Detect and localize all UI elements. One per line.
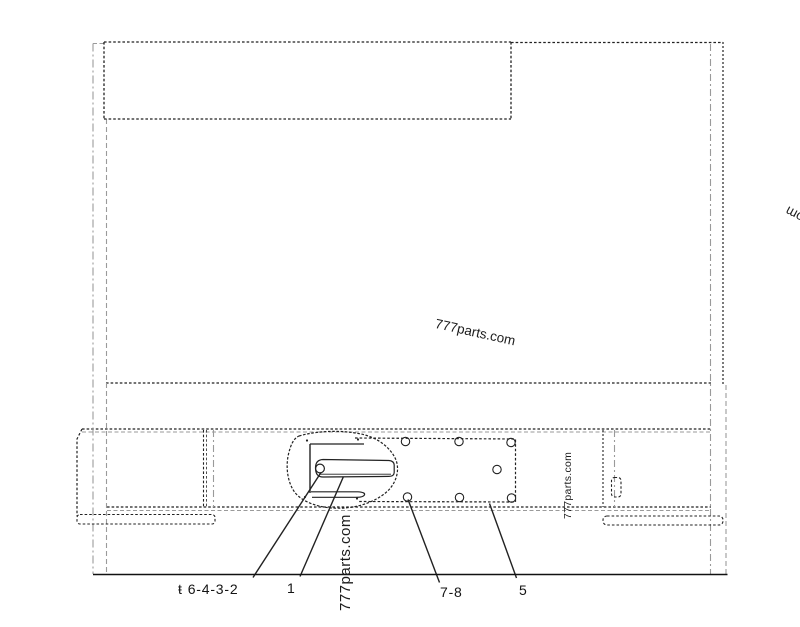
leader-5 bbox=[490, 504, 517, 579]
machine-body-outline bbox=[77, 42, 723, 516]
access-panel-part-5 bbox=[304, 437, 516, 502]
leader-7-8 bbox=[408, 500, 440, 583]
rivet-dot bbox=[357, 438, 359, 440]
parts-diagram-canvas: ŧ6-4-3-2 1 7-8 5 777parts.com 777parts.c… bbox=[0, 0, 800, 627]
panel-screw bbox=[455, 493, 463, 501]
latch-lower-bar bbox=[311, 492, 365, 498]
callout-label-6-4-3-2: ŧ6-4-3-2 bbox=[178, 581, 238, 597]
left-chamfer-edge bbox=[77, 429, 82, 516]
callout-text: 7-8 bbox=[440, 584, 463, 600]
top-hood-panel-outline bbox=[104, 42, 511, 119]
left-sill-bar bbox=[77, 515, 215, 525]
panel-screw bbox=[507, 438, 515, 446]
diagram-line-art bbox=[0, 0, 800, 627]
rivet-dot bbox=[306, 439, 308, 441]
watermark-right-vertical: 777parts.com bbox=[562, 452, 574, 519]
right-sill-bar bbox=[603, 516, 723, 525]
compartment-clip bbox=[612, 478, 622, 498]
watermark-bottom-vertical: 777parts.com bbox=[337, 514, 354, 611]
callout-leader-lines bbox=[253, 473, 517, 583]
panel-screw bbox=[455, 437, 463, 445]
detail-blob-outline bbox=[287, 431, 397, 508]
callout-text: 6-4-3-2 bbox=[188, 581, 239, 597]
latch-detail-blob bbox=[287, 431, 397, 508]
callout-label-5: 5 bbox=[519, 582, 528, 598]
leader-6-4-3-2 bbox=[253, 473, 321, 578]
access-panel-outline bbox=[355, 438, 516, 502]
callout-text: 1 bbox=[287, 580, 296, 596]
callout-label-1: 1 bbox=[287, 580, 296, 596]
latch-bolt bbox=[316, 464, 325, 473]
callout-prefix-glyph: ŧ bbox=[178, 581, 183, 597]
panel-screw bbox=[401, 437, 409, 445]
panel-screw bbox=[507, 494, 515, 502]
callout-label-7-8: 7-8 bbox=[440, 584, 463, 600]
callout-text: 5 bbox=[519, 582, 528, 598]
panel-screw bbox=[493, 465, 501, 473]
